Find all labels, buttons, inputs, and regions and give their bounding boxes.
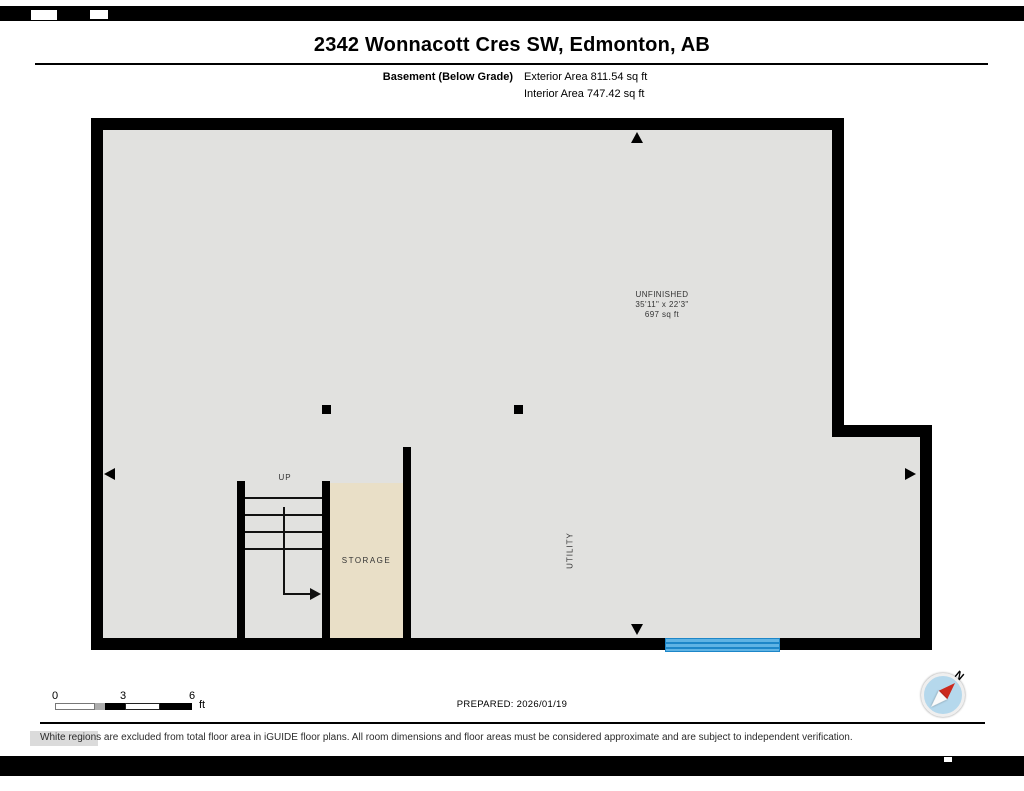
room-name: UNFINISHED xyxy=(592,290,732,300)
header-bar xyxy=(0,6,1024,21)
wall-top xyxy=(91,118,844,130)
room-dimensions: 35'11" x 22'3" xyxy=(592,300,732,310)
storage-wall-right xyxy=(403,447,411,638)
opening-arrow-left-icon xyxy=(104,468,115,480)
exterior-area-value: Exterior Area 811.54 sq ft xyxy=(524,71,647,83)
stair-wall-right xyxy=(322,481,330,638)
page-title: 2342 Wonnacott Cres SW, Edmonton, AB xyxy=(0,34,1024,57)
room-label: UNFINISHED 35'11" x 22'3" 697 sq ft xyxy=(592,290,732,320)
prepared-date: PREPARED: 2026/01/19 xyxy=(0,699,1024,710)
wall-bottom xyxy=(91,638,932,650)
stairs-up-label: UP xyxy=(268,473,302,482)
footer-bar-mark xyxy=(944,757,952,762)
compass-icon: N xyxy=(921,673,969,721)
window-symbol xyxy=(665,638,780,652)
disclaimer-text: White regions are excluded from total fl… xyxy=(40,732,940,743)
wall-step xyxy=(832,425,932,437)
interior-fill xyxy=(95,122,840,648)
opening-arrow-down-icon xyxy=(631,624,643,635)
opening-arrow-right-icon xyxy=(905,468,916,480)
window-pane-line xyxy=(666,642,779,644)
footer-divider xyxy=(40,722,985,724)
stair-tread xyxy=(245,497,322,499)
title-divider xyxy=(35,63,988,65)
floor-label: Basement (Below Grade) xyxy=(260,71,513,83)
opening-arrow-up-icon xyxy=(631,132,643,143)
stair-wall-left xyxy=(237,481,245,638)
room-area: 697 sq ft xyxy=(592,310,732,320)
wall-left xyxy=(91,118,103,650)
post-marker xyxy=(322,405,331,414)
storage-label: STORAGE xyxy=(330,556,403,565)
footer-bar xyxy=(0,756,1024,776)
floorplan-page: 2342 Wonnacott Cres SW, Edmonton, AB Bas… xyxy=(0,0,1024,791)
utility-label: UTILITY xyxy=(566,519,575,583)
header-bar-mark xyxy=(90,10,108,19)
stair-direction-line xyxy=(283,507,285,595)
interior-fill-extension xyxy=(838,429,928,648)
wall-right-upper xyxy=(832,118,844,437)
header-bar-mark xyxy=(31,10,57,20)
interior-area-value: Interior Area 747.42 sq ft xyxy=(524,88,644,100)
stair-direction-arrow-icon xyxy=(310,588,321,600)
wall-right-lower xyxy=(920,425,932,650)
post-marker xyxy=(514,405,523,414)
window-pane-line xyxy=(666,647,779,649)
